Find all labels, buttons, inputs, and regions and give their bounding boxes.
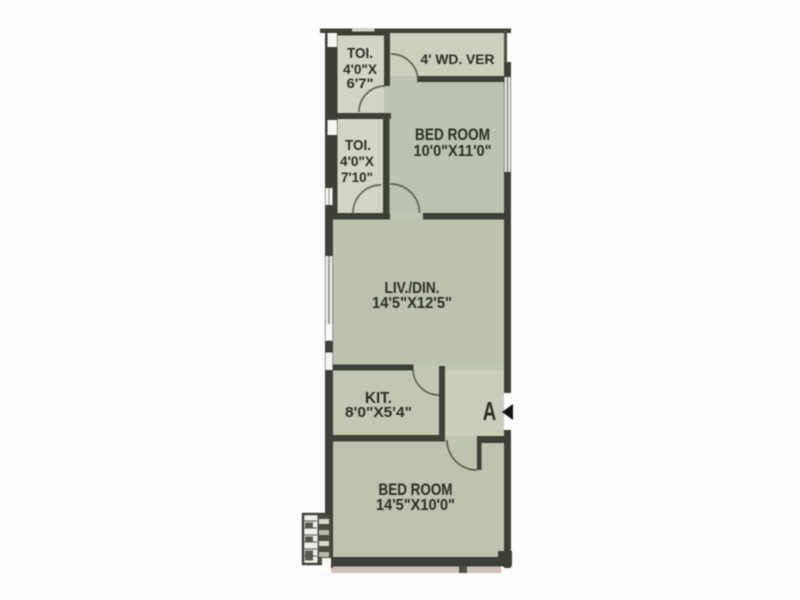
svg-text:7'10": 7'10" <box>341 170 373 185</box>
svg-text:TOI.: TOI. <box>345 137 371 154</box>
svg-text:8'0"X5'4": 8'0"X5'4" <box>345 404 412 421</box>
svg-text:10'0"X11'0": 10'0"X11'0" <box>414 143 492 160</box>
svg-text:A: A <box>483 396 497 426</box>
svg-text:6'7": 6'7" <box>347 76 374 91</box>
svg-text:14'5"X12'5": 14'5"X12'5" <box>372 295 452 312</box>
svg-text:14'5"X10'0": 14'5"X10'0" <box>376 497 455 514</box>
svg-text:TOI.: TOI. <box>347 45 373 62</box>
svg-text:4'0"X: 4'0"X <box>343 62 377 77</box>
svg-text:4'0"X: 4'0"X <box>340 154 374 169</box>
svg-text:BED ROOM: BED ROOM <box>415 125 490 144</box>
svg-text:4' WD. VER: 4' WD. VER <box>421 52 495 67</box>
